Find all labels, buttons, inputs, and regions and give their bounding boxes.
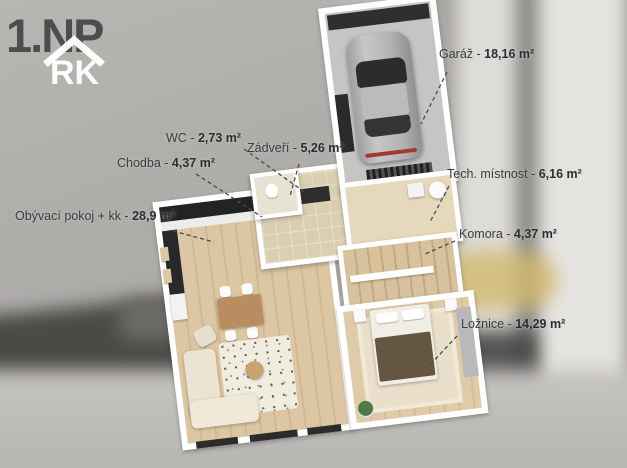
pillow: [401, 308, 424, 321]
floorplan-screenshot: 1.NP RK: [0, 0, 627, 468]
bed: [369, 303, 438, 386]
room-name: Zádveří: [247, 141, 289, 155]
garage-door: [327, 3, 430, 30]
room-name: Tech. místnost: [447, 167, 528, 181]
room-area: 2,73 m²: [198, 131, 241, 145]
room-area: 4,37 m²: [172, 156, 215, 170]
toilet: [265, 183, 279, 198]
bed-blanket: [375, 331, 436, 381]
dining-table: [217, 294, 264, 329]
label-wc: WC - 2,73 m²: [166, 131, 241, 145]
room-area: 6,16 m²: [539, 167, 582, 181]
room-bedroom: [336, 290, 488, 430]
room-name: WC: [166, 131, 187, 145]
floorplan-3d-render: [123, 0, 484, 451]
kitchen-tall-unit: [162, 230, 185, 295]
dining-chair: [219, 285, 231, 297]
room-area: 5,26 m²: [301, 141, 344, 155]
room-area: 28,9 m²: [132, 209, 175, 223]
dining-chair: [225, 329, 237, 341]
room-name: Ložnice: [461, 317, 504, 331]
label-pantry: Komora - 4,37 m²: [459, 227, 557, 241]
wall-art: [163, 269, 173, 284]
room-name: Garáž: [439, 47, 473, 61]
kitchen-fridge: [170, 293, 188, 321]
room-name: Chodba: [117, 156, 161, 170]
label-hallway: Chodba - 4,37 m²: [117, 156, 215, 170]
room-area: 18,16 m²: [484, 47, 534, 61]
car: [345, 30, 424, 165]
stair-railing: [350, 266, 434, 283]
room-area: 4,37 m²: [514, 227, 557, 241]
armchair: [192, 323, 218, 348]
room-wc: [250, 168, 303, 220]
rk-logo-text: RK: [50, 54, 100, 92]
dining-chair: [241, 283, 253, 295]
room-name: Obývací pokoj + kk: [15, 209, 121, 223]
room-garage: [318, 0, 458, 195]
washing-machine: [407, 182, 425, 198]
car-taillights: [365, 148, 417, 158]
room-name: Komora: [459, 227, 503, 241]
label-tech-room: Tech. místnost - 6,16 m²: [447, 167, 582, 181]
label-entry: Zádveří - 5,26 m²: [247, 141, 344, 155]
label-living-room: Obývací pokoj + kk - 28,9 m²: [15, 209, 175, 223]
label-garage: Garáž - 18,16 m²: [439, 47, 534, 61]
pillow: [376, 311, 399, 324]
wall-art: [160, 247, 170, 262]
nightstand: [353, 309, 366, 322]
boiler: [428, 181, 447, 200]
room-area: 14,29 m²: [515, 317, 565, 331]
rk-house-logo-icon: RK: [40, 32, 112, 92]
dining-chair: [246, 326, 258, 338]
label-bedroom: Ložnice - 14,29 m²: [461, 317, 565, 331]
